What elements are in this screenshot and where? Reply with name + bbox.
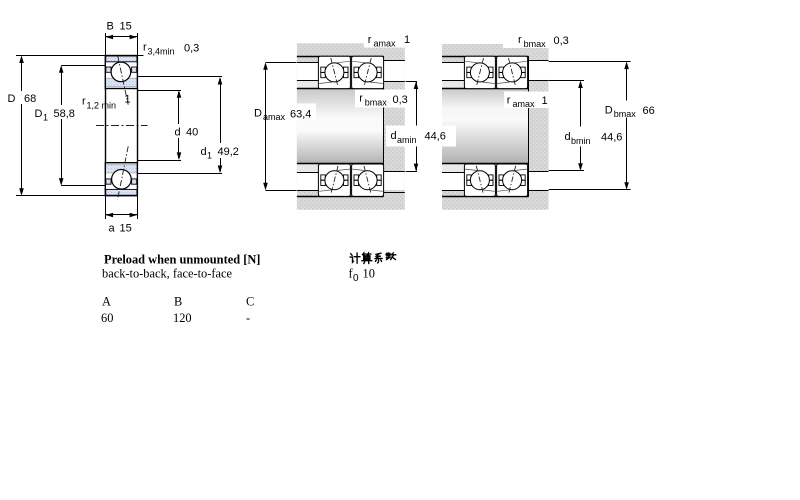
svg-text:3,4min: 3,4min xyxy=(148,47,175,57)
svg-text:d: d xyxy=(175,127,181,139)
svg-text:r: r xyxy=(82,96,86,108)
svg-text:0: 0 xyxy=(353,273,359,284)
svg-text:0,3: 0,3 xyxy=(184,43,199,55)
svg-text:D: D xyxy=(35,108,43,120)
svg-text:D: D xyxy=(254,108,262,120)
svg-text:44,6: 44,6 xyxy=(601,132,622,144)
svg-text:a: a xyxy=(109,223,116,235)
svg-text:bmin: bmin xyxy=(571,136,591,146)
svg-text:40: 40 xyxy=(186,127,198,139)
svg-text:A: A xyxy=(102,295,111,309)
svg-text:68: 68 xyxy=(24,93,36,105)
svg-text:D: D xyxy=(605,105,613,117)
svg-text:r: r xyxy=(518,34,522,46)
svg-text:r: r xyxy=(143,42,147,54)
svg-text:amax: amax xyxy=(513,99,536,109)
svg-text:15: 15 xyxy=(120,21,132,33)
svg-text:66: 66 xyxy=(643,105,655,117)
svg-text:63,4: 63,4 xyxy=(290,109,311,121)
svg-text:1: 1 xyxy=(404,34,410,46)
svg-text:bmax: bmax xyxy=(365,98,388,108)
svg-text:amin: amin xyxy=(397,135,417,145)
svg-text:15: 15 xyxy=(120,223,132,235)
svg-text:120: 120 xyxy=(173,311,192,325)
svg-text:60: 60 xyxy=(101,311,113,325)
svg-text:49,2: 49,2 xyxy=(218,146,239,158)
svg-text:-: - xyxy=(246,311,250,325)
svg-text:0,3: 0,3 xyxy=(554,35,569,47)
svg-text:58,8: 58,8 xyxy=(54,108,75,120)
svg-text:10: 10 xyxy=(363,267,375,281)
svg-text:d: d xyxy=(565,131,571,143)
svg-text:r: r xyxy=(507,95,511,107)
svg-text:r: r xyxy=(368,34,372,46)
svg-text:C: C xyxy=(246,295,254,309)
svg-text:amax: amax xyxy=(374,39,397,49)
svg-text:1: 1 xyxy=(542,95,548,107)
svg-text:D: D xyxy=(8,93,16,105)
svg-text:1: 1 xyxy=(207,151,212,161)
svg-text:bmax: bmax xyxy=(614,109,637,119)
svg-text:1: 1 xyxy=(43,113,48,123)
svg-text:r: r xyxy=(359,93,363,105)
svg-text:1: 1 xyxy=(125,94,131,106)
svg-text:B: B xyxy=(107,21,114,33)
svg-text:B: B xyxy=(174,295,182,309)
svg-text:d: d xyxy=(201,146,207,158)
svg-text:amax: amax xyxy=(263,112,286,122)
svg-text:back-to-back, face-to-face: back-to-back, face-to-face xyxy=(102,267,233,281)
svg-text:1,2 min: 1,2 min xyxy=(87,101,117,111)
svg-text:d: d xyxy=(391,130,397,142)
svg-text:bmax: bmax xyxy=(524,39,547,49)
svg-text:Preload when unmounted [N]: Preload when unmounted [N] xyxy=(104,253,260,267)
svg-text:0,3: 0,3 xyxy=(393,94,408,106)
svg-text:44,6: 44,6 xyxy=(425,131,446,143)
